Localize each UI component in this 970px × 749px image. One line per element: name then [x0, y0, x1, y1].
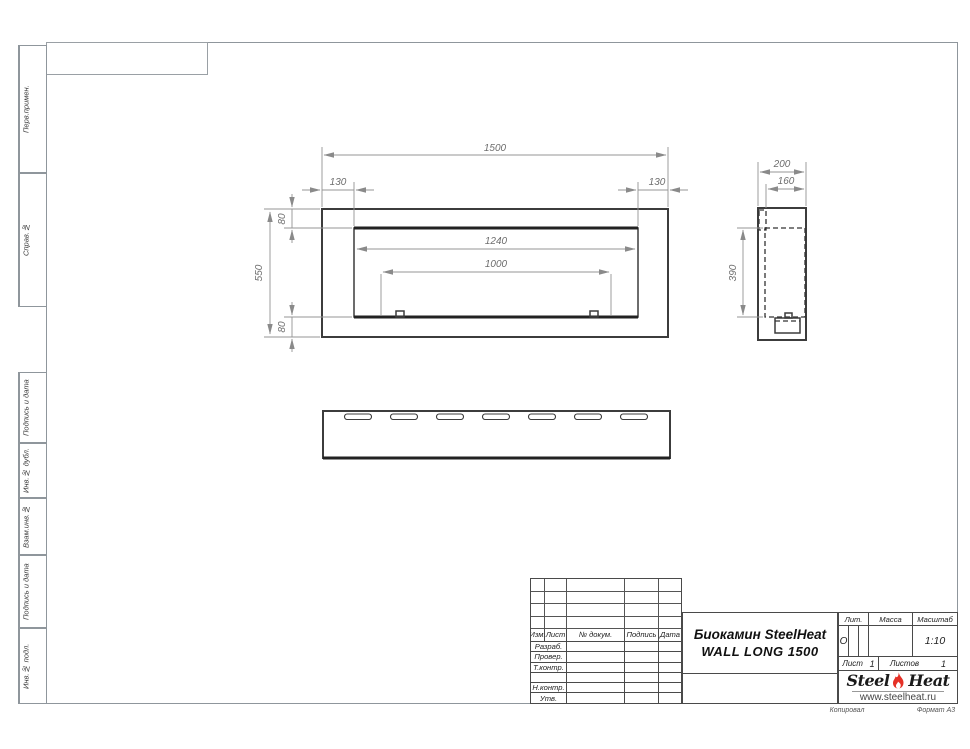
margin-cell-label: Взам.инв.№: [19, 499, 32, 554]
margin-cell-label: Справ.№: [19, 174, 32, 306]
row-empty: [531, 673, 681, 684]
scale-value: 1:10: [913, 626, 957, 656]
mass-value: [869, 626, 913, 656]
company-logo-cell: Steel Heat www.steelheat.ru: [839, 671, 957, 703]
row-label: Провер.: [531, 652, 567, 662]
col-list: Лист: [545, 629, 567, 641]
col-sign: Подпись: [625, 629, 659, 641]
row-nkontr: Н.контр.: [531, 683, 681, 693]
lit-mass-scale-header: Лит. Масса Масштаб: [839, 613, 957, 626]
top-left-stamp-box: [46, 42, 208, 75]
row-label: Т.контр.: [531, 663, 567, 672]
margin-cell-inv-dubl: Инв.№ дубл.: [18, 443, 47, 498]
col-doc: № докум.: [567, 629, 625, 641]
margin-cell-label: Инв.№ дубл.: [19, 444, 32, 497]
steelheat-logo: Steel Heat: [847, 671, 950, 690]
margin-cell-podpis-data-1: Подпись и дата: [18, 372, 47, 443]
title-block-signature-table: Изм. Лист № докум. Подпись Дата Разраб. …: [530, 578, 682, 704]
lit-value: О: [839, 626, 849, 656]
sheet-label: Лист: [842, 659, 863, 668]
margin-cell-podpis-data-2: Подпись и дата: [18, 555, 47, 628]
logo-heat-text: Heat: [908, 671, 949, 690]
row-label: Разраб.: [531, 642, 567, 652]
sheet-frame: [46, 42, 958, 704]
margin-cell-vzam-inv: Взам.инв.№: [18, 498, 47, 555]
margin-cell-sprav-no: Справ.№: [18, 173, 47, 307]
sheet-number: 1: [870, 659, 875, 669]
col-izm: Изм.: [531, 629, 545, 641]
lit-label: Лит.: [839, 613, 869, 625]
margin-cell-label: Инв.№ подл.: [19, 629, 32, 703]
row-label: Утв.: [531, 693, 567, 703]
logo-url: www.steelheat.ru: [852, 691, 944, 703]
mass-label: Масса: [869, 613, 913, 625]
row-label: Н.контр.: [531, 683, 567, 692]
sheets-number: 1: [941, 659, 946, 669]
copied-note: Копировал: [812, 707, 882, 714]
sheets-label: Листов: [890, 659, 919, 668]
scale-label: Масштаб: [913, 613, 957, 625]
title-block-right-column: Лит. Масса Масштаб О 1:10 Лист 1 Листов …: [838, 612, 958, 704]
col-date: Дата: [659, 629, 681, 641]
document-title-line1: Биокамин SteelHeat: [694, 627, 826, 642]
document-title-line2: WALL LONG 1500: [701, 644, 818, 659]
margin-cell-label: Подпись и дата: [19, 556, 32, 627]
sheet: 1500 130 130 550 80 80 1240: [0, 0, 970, 749]
margin-cell-inv-podl: Инв.№ подл.: [18, 628, 47, 704]
margin-cell-label: Перв.примен.: [19, 46, 32, 172]
document-title: Биокамин SteelHeat WALL LONG 1500: [683, 613, 837, 674]
row-prover: Провер.: [531, 652, 681, 663]
format-note: Формат А3: [900, 707, 970, 714]
flame-icon: [891, 672, 906, 690]
lit-mass-scale-values: О 1:10: [839, 626, 957, 657]
title-block-name-cell: Биокамин SteelHeat WALL LONG 1500: [682, 612, 838, 704]
row-razrab: Разраб.: [531, 642, 681, 653]
signature-header-row: Изм. Лист № докум. Подпись Дата: [531, 629, 681, 642]
margin-cell-perv-primen: Перв.примен.: [18, 45, 47, 173]
revision-rows: [531, 579, 681, 629]
row-utv: Утв.: [531, 693, 681, 703]
margin-cell-label: Подпись и дата: [19, 373, 32, 442]
sheet-count-row: Лист 1 Листов 1: [839, 657, 957, 671]
row-tkontr: Т.контр.: [531, 663, 681, 673]
logo-steel-text: Steel: [847, 671, 890, 690]
